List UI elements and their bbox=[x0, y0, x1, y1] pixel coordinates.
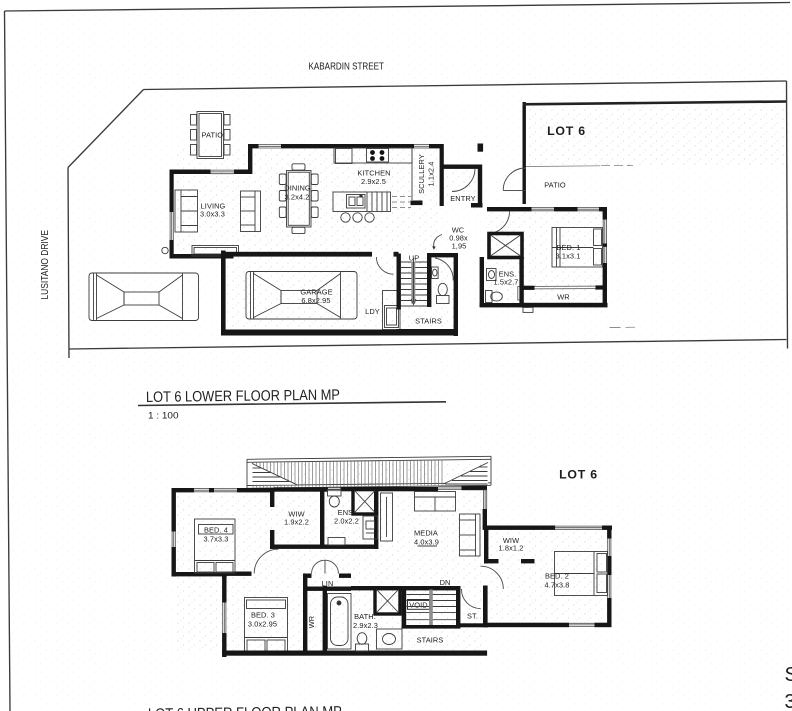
svg-text:1 : 100: 1 : 100 bbox=[148, 411, 179, 422]
svg-text:UP: UP bbox=[409, 254, 419, 263]
svg-text:LOT 6: LOT 6 bbox=[559, 468, 598, 482]
svg-text:1.9x2.2: 1.9x2.2 bbox=[284, 518, 309, 527]
svg-text:3.0x2.95: 3.0x2.95 bbox=[248, 620, 277, 629]
svg-text:2.0x2.2: 2.0x2.2 bbox=[334, 517, 359, 526]
svg-text:BED. 4: BED. 4 bbox=[204, 526, 228, 535]
svg-text:2.9x2.5: 2.9x2.5 bbox=[361, 177, 386, 186]
svg-text:VOID: VOID bbox=[409, 601, 427, 610]
svg-text:KABARDIN STREET: KABARDIN STREET bbox=[309, 61, 385, 72]
svg-text:STAIRS: STAIRS bbox=[417, 636, 444, 645]
svg-text:DINING: DINING bbox=[284, 184, 311, 193]
svg-text:DN: DN bbox=[440, 578, 451, 587]
svg-text:3.1x3.1: 3.1x3.1 bbox=[556, 252, 581, 261]
svg-text:BED. 3: BED. 3 bbox=[251, 611, 275, 620]
svg-text:1.8x1.2: 1.8x1.2 bbox=[499, 544, 524, 553]
svg-text:3: 3 bbox=[785, 691, 792, 711]
svg-text:MEDIA: MEDIA bbox=[414, 529, 438, 538]
svg-text:LDY: LDY bbox=[365, 307, 380, 316]
svg-text:PATIO: PATIO bbox=[544, 180, 566, 189]
svg-text:PATIO: PATIO bbox=[202, 130, 224, 139]
svg-text:LUSITANO DRIVE: LUSITANO DRIVE bbox=[40, 230, 51, 300]
svg-text:S: S bbox=[785, 664, 792, 686]
svg-text:3.0x3.3: 3.0x3.3 bbox=[200, 210, 225, 219]
svg-text:2.9x2.3: 2.9x2.3 bbox=[353, 621, 378, 630]
svg-text:LOT 6 UPPER FLOOR PLAN MP: LOT 6 UPPER FLOOR PLAN MP bbox=[148, 703, 342, 711]
svg-text:4.7x3.8: 4.7x3.8 bbox=[545, 581, 570, 590]
svg-text:SCULLERY: SCULLERY bbox=[417, 154, 426, 194]
svg-text:BED. 2: BED. 2 bbox=[545, 572, 569, 581]
svg-text:STAIRS: STAIRS bbox=[415, 317, 442, 326]
svg-text:4.0x3.9: 4.0x3.9 bbox=[414, 538, 439, 547]
svg-text:3.2x4.2: 3.2x4.2 bbox=[285, 193, 310, 202]
svg-text:1.5x2.7: 1.5x2.7 bbox=[494, 278, 519, 287]
svg-text:1.1x2.4: 1.1x2.4 bbox=[427, 162, 436, 187]
svg-text:WR: WR bbox=[307, 616, 316, 629]
svg-text:BATH.: BATH. bbox=[354, 612, 376, 621]
svg-text:1,95: 1,95 bbox=[452, 242, 467, 251]
svg-text:3.7x3.3: 3.7x3.3 bbox=[204, 535, 229, 544]
svg-text:ENTRY: ENTRY bbox=[450, 194, 475, 203]
svg-text:ST.: ST. bbox=[467, 612, 478, 621]
svg-text:WR: WR bbox=[557, 293, 570, 302]
svg-text:LOT 6: LOT 6 bbox=[547, 124, 586, 138]
